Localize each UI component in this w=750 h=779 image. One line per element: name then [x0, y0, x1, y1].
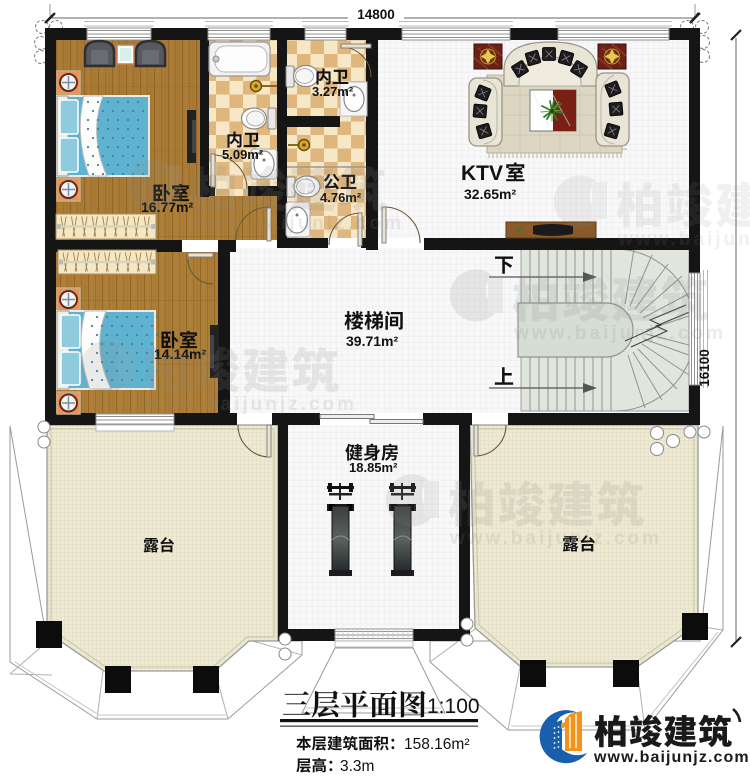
svg-text:www.baijunjz.com: www.baijunjz.com — [191, 213, 404, 234]
svg-text:3.27m²: 3.27m² — [312, 84, 354, 99]
svg-text:1:100: 1:100 — [427, 695, 480, 718]
svg-text:158.16m²: 158.16m² — [404, 736, 469, 753]
svg-text:KTV: KTV — [461, 162, 503, 185]
svg-text:18.85m²: 18.85m² — [349, 460, 398, 475]
svg-text:32.65m²: 32.65m² — [464, 186, 516, 202]
svg-text:www.baijunjz.com: www.baijunjz.com — [593, 749, 750, 766]
svg-text:3.3m: 3.3m — [340, 758, 374, 775]
svg-text:www.baijunjz.com: www.baijunjz.com — [617, 229, 750, 250]
svg-text:5.09m²: 5.09m² — [222, 147, 264, 162]
svg-text:39.71m²: 39.71m² — [346, 333, 398, 349]
svg-text:www.baijunjz.com: www.baijunjz.com — [513, 323, 726, 344]
svg-text:14800: 14800 — [357, 7, 395, 22]
svg-text:16100: 16100 — [697, 349, 712, 387]
svg-text:www.baijunjz.com: www.baijunjz.com — [144, 394, 357, 415]
svg-text:www.baijunjz.com: www.baijunjz.com — [449, 528, 662, 549]
